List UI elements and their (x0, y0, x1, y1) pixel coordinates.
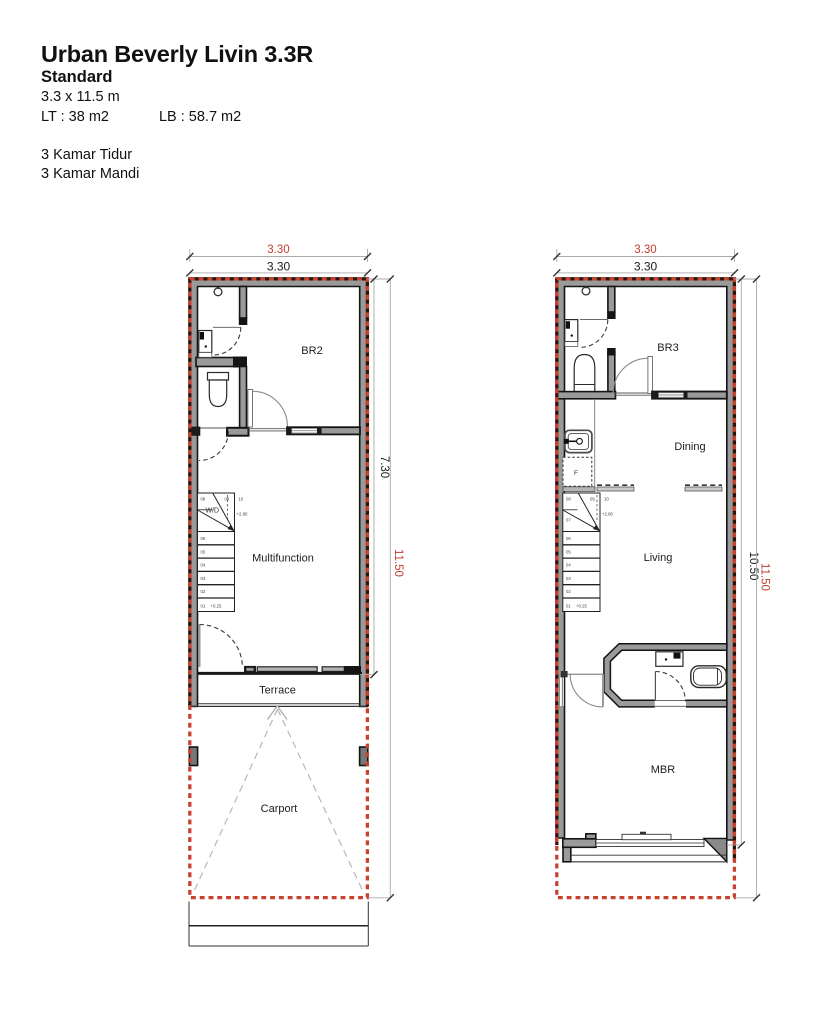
svg-text:10: 10 (239, 497, 244, 502)
svg-text:01: 01 (201, 604, 206, 609)
svg-text:+2.80: +2.80 (237, 512, 248, 517)
svg-text:04: 04 (201, 563, 206, 568)
svg-text:03: 03 (201, 576, 206, 581)
svg-text:Dining: Dining (674, 441, 705, 453)
svg-text:02: 02 (201, 589, 206, 594)
svg-text:01: 01 (566, 604, 571, 609)
svg-text:+0.25: +0.25 (576, 604, 587, 609)
svg-text:09: 09 (225, 497, 230, 502)
svg-text:W/D: W/D (206, 508, 220, 515)
svg-text:06: 06 (566, 536, 571, 541)
svg-text:+2.80: +2.80 (602, 512, 613, 517)
svg-text:05: 05 (566, 549, 571, 554)
svg-text:06: 06 (201, 536, 206, 541)
svg-text:Living: Living (644, 552, 673, 564)
svg-text:03: 03 (566, 576, 571, 581)
svg-text:3.30: 3.30 (267, 259, 291, 273)
svg-text:3.30: 3.30 (267, 244, 289, 256)
svg-text:MBR: MBR (651, 764, 676, 776)
svg-text:09: 09 (590, 497, 595, 502)
svg-text:10: 10 (604, 497, 609, 502)
svg-text:Multifunction: Multifunction (252, 553, 314, 565)
svg-text:04: 04 (566, 563, 571, 568)
svg-text:10.50: 10.50 (747, 552, 759, 581)
svg-text:08: 08 (566, 497, 571, 502)
svg-text:Terrace: Terrace (259, 685, 296, 697)
svg-text:BR2: BR2 (301, 345, 322, 357)
svg-text:Carport: Carport (261, 803, 298, 815)
svg-text:08: 08 (201, 497, 206, 502)
svg-text:05: 05 (201, 549, 206, 554)
svg-text:07: 07 (566, 518, 571, 523)
svg-text:+0.25: +0.25 (211, 604, 222, 609)
svg-text:7.30: 7.30 (378, 456, 390, 478)
svg-text:11.50: 11.50 (759, 563, 771, 591)
svg-text:11.50: 11.50 (392, 549, 404, 577)
svg-text:F: F (574, 470, 578, 477)
svg-text:BR3: BR3 (657, 342, 678, 354)
svg-text:3.30: 3.30 (634, 259, 658, 273)
svg-text:3.30: 3.30 (634, 244, 656, 256)
svg-text:02: 02 (566, 589, 571, 594)
